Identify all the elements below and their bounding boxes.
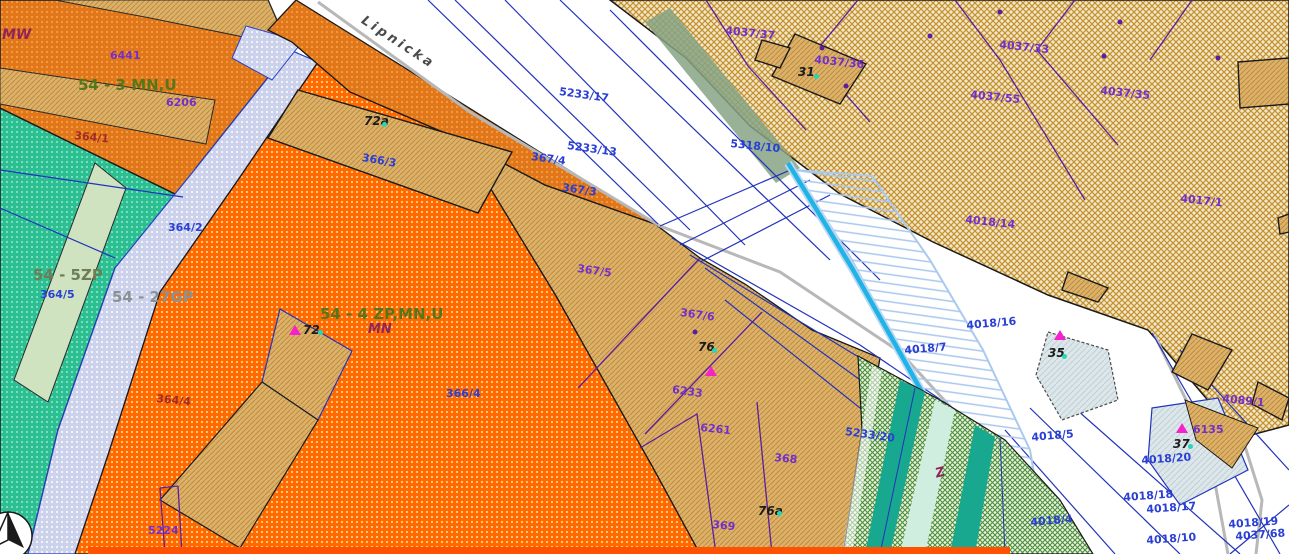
boundary-red-strip (88, 547, 1010, 554)
zoning-map-viewport[interactable]: Lipnicka MW 54 - 3 MN,U 54 - 5ZP 54 - 27… (0, 0, 1289, 554)
map-canvas[interactable] (0, 0, 1289, 554)
